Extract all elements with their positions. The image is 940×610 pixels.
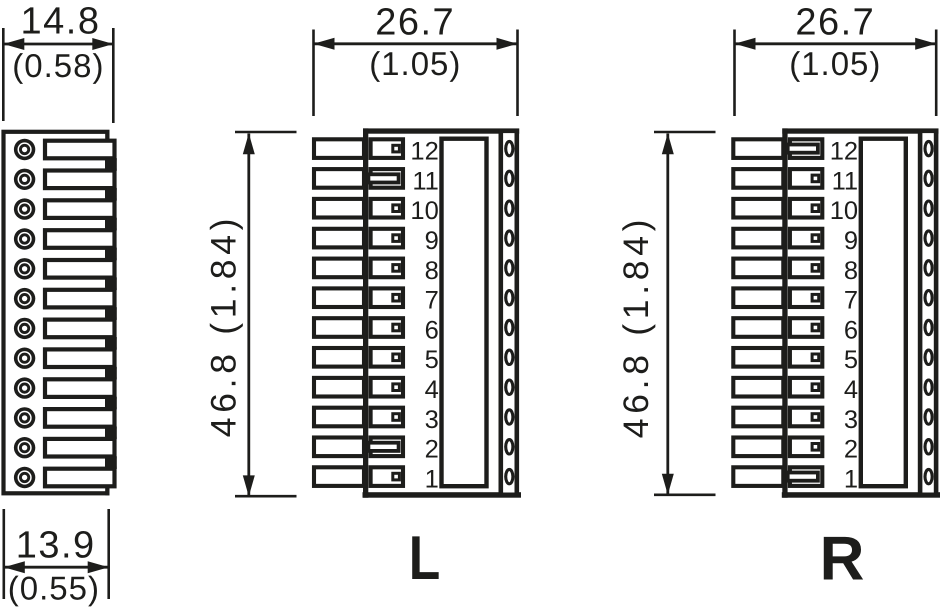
svg-text:26.7: 26.7: [375, 2, 455, 44]
svg-text:4: 4: [425, 376, 439, 404]
svg-text:L: L: [409, 524, 441, 593]
svg-text:12: 12: [830, 138, 858, 166]
svg-text:4: 4: [844, 376, 858, 404]
svg-text:1: 1: [425, 466, 439, 494]
svg-text:1: 1: [844, 466, 858, 494]
svg-text:13.9: 13.9: [16, 525, 96, 567]
svg-text:11: 11: [832, 167, 858, 195]
svg-text:5: 5: [844, 346, 858, 374]
svg-text:46.8 (1.84): 46.8 (1.84): [204, 214, 244, 437]
svg-text:6: 6: [844, 316, 858, 344]
svg-text:2: 2: [425, 436, 439, 464]
svg-text:5: 5: [425, 346, 439, 374]
svg-text:7: 7: [844, 287, 858, 315]
svg-text:(1.05): (1.05): [369, 45, 461, 82]
svg-text:26.7: 26.7: [795, 2, 875, 44]
svg-text:11: 11: [412, 167, 438, 195]
svg-text:R: R: [820, 524, 865, 593]
svg-text:(1.05): (1.05): [789, 45, 881, 82]
svg-text:12: 12: [410, 138, 438, 166]
svg-text:3: 3: [844, 406, 858, 434]
svg-text:10: 10: [410, 197, 438, 225]
svg-text:(0.58): (0.58): [12, 47, 104, 84]
svg-text:3: 3: [425, 406, 439, 434]
svg-text:7: 7: [425, 287, 439, 315]
svg-text:14.8: 14.8: [21, 1, 101, 43]
svg-text:8: 8: [844, 257, 858, 285]
svg-text:8: 8: [425, 257, 439, 285]
svg-text:46.8 (1.84): 46.8 (1.84): [616, 215, 656, 438]
svg-text:9: 9: [844, 227, 858, 255]
svg-text:2: 2: [844, 436, 858, 464]
svg-text:9: 9: [425, 227, 439, 255]
svg-text:(0.55): (0.55): [8, 570, 100, 607]
svg-text:6: 6: [425, 316, 439, 344]
svg-text:10: 10: [830, 197, 858, 225]
